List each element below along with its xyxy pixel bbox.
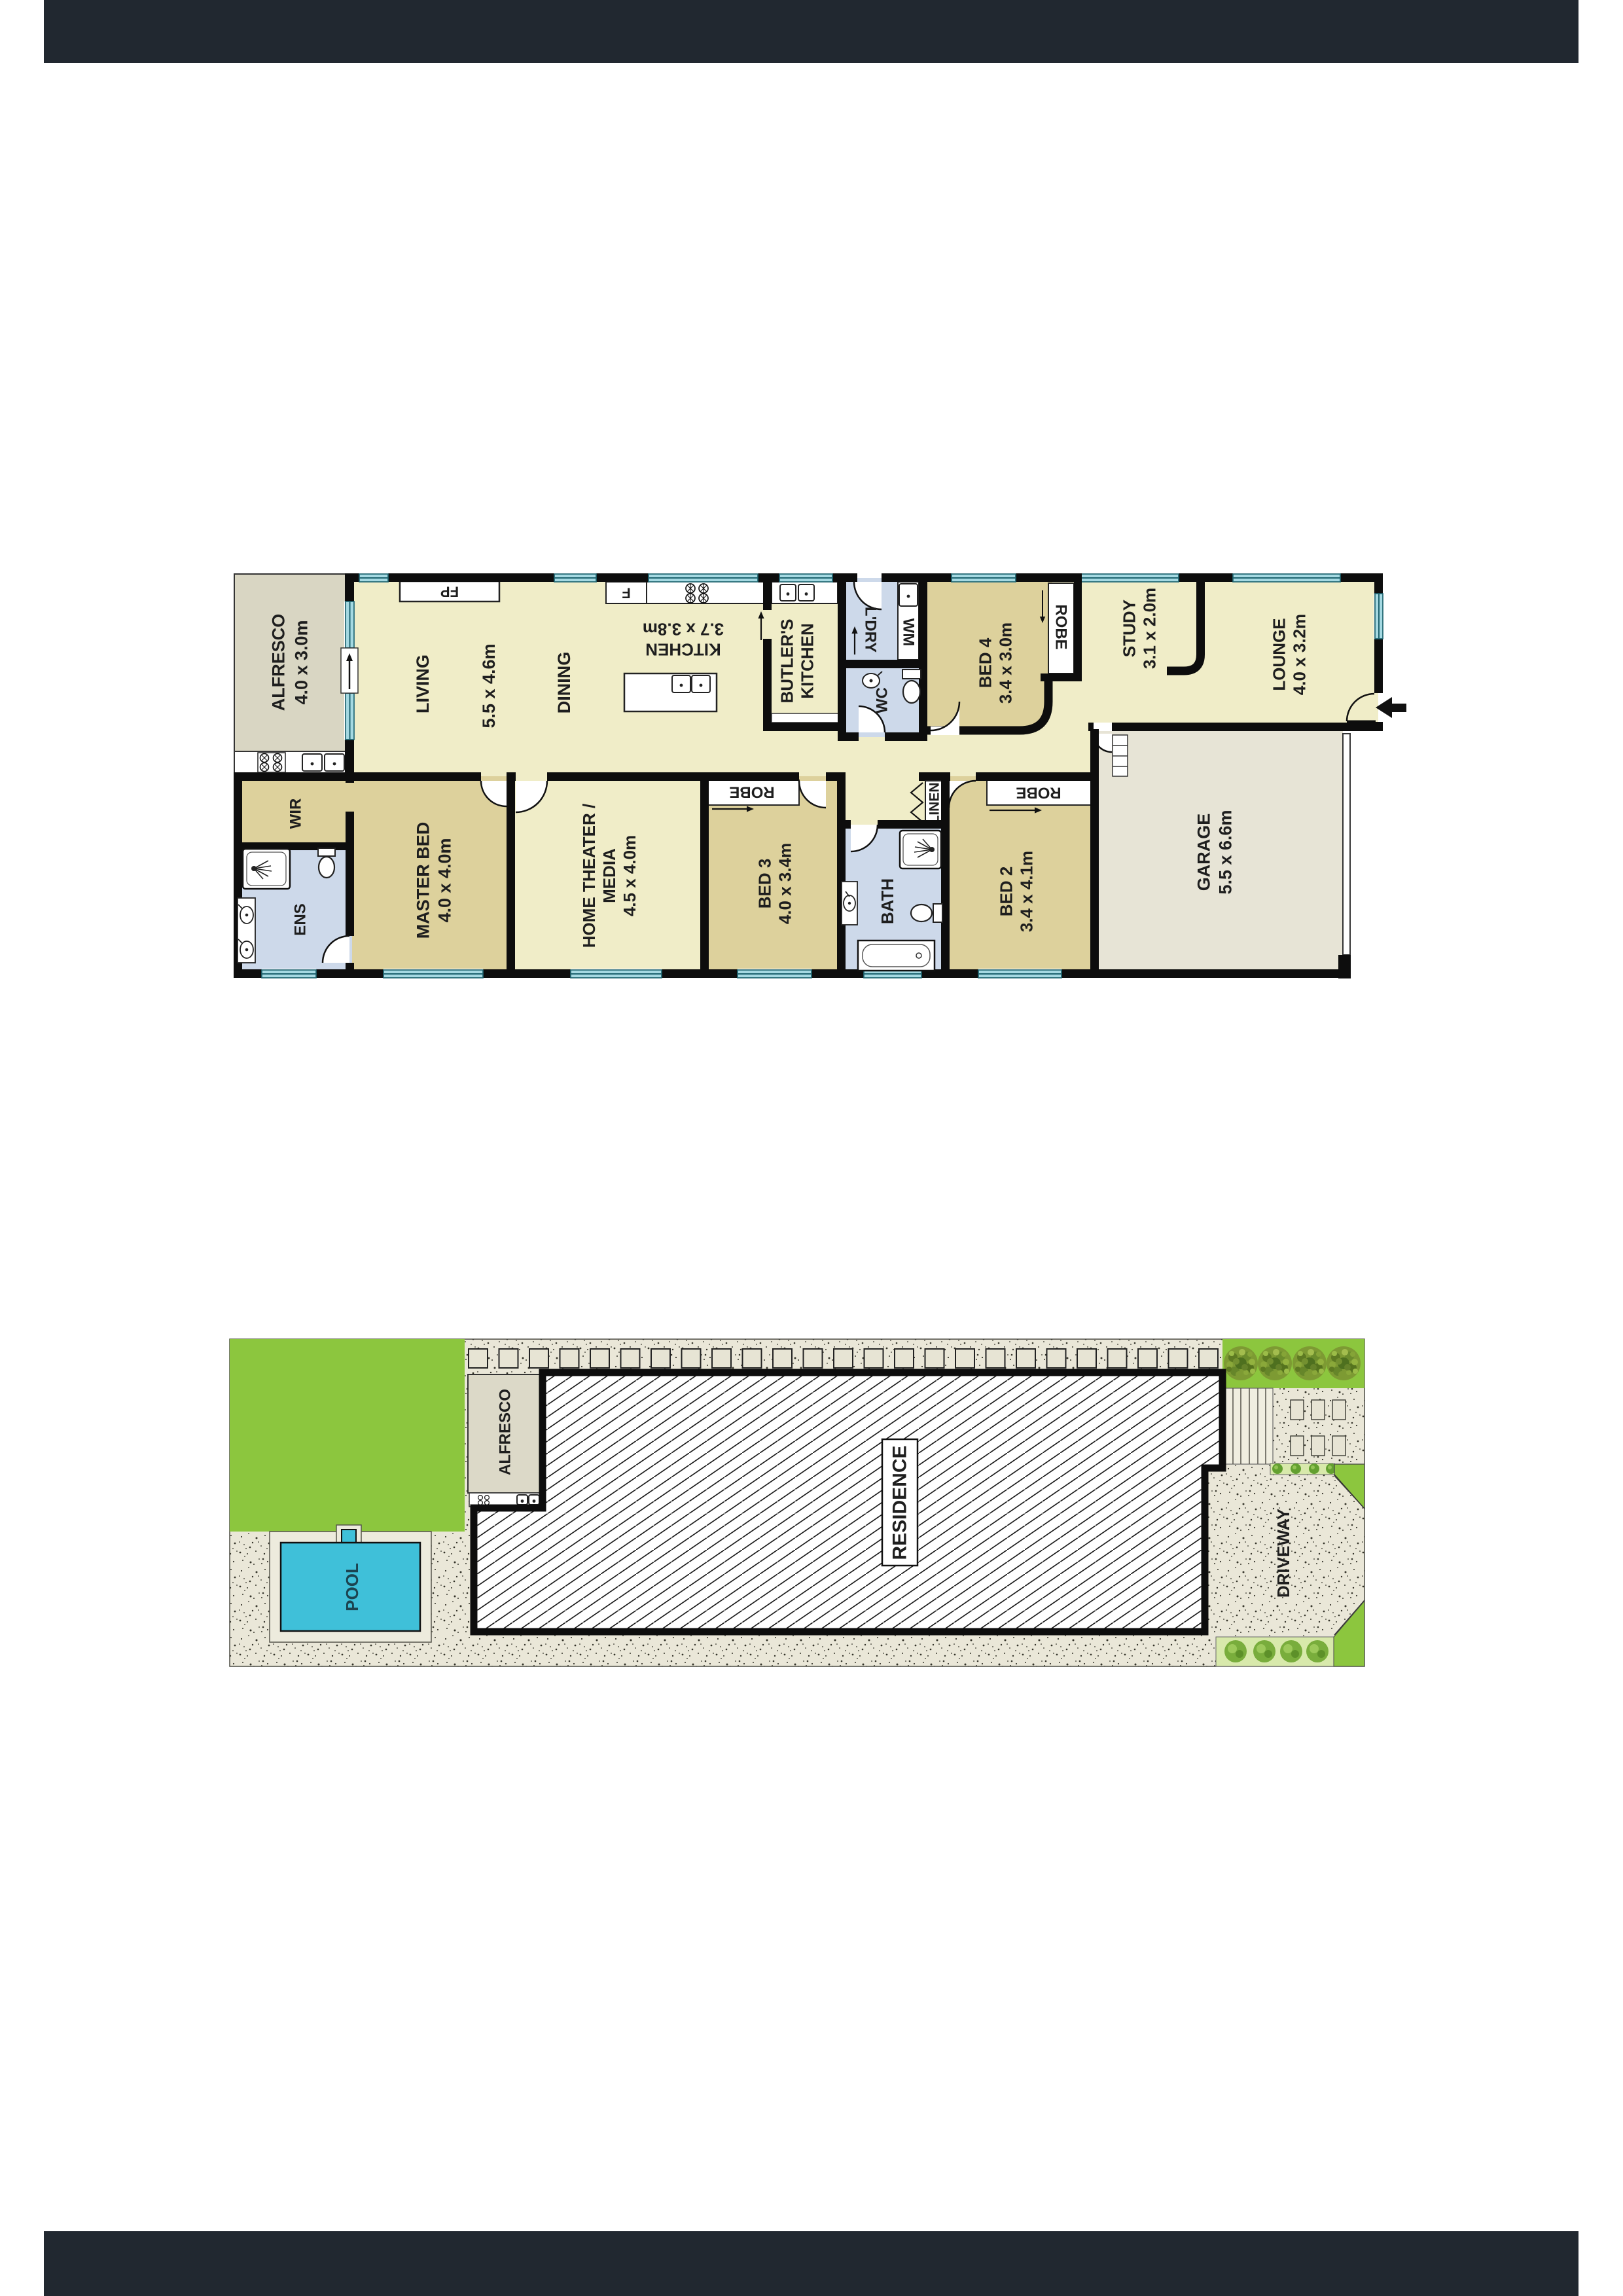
svg-text:4.5 x 4.0m: 4.5 x 4.0m (620, 835, 639, 916)
svg-text:BED 2: BED 2 (997, 867, 1016, 917)
svg-text:LINEN: LINEN (927, 783, 942, 824)
svg-text:4.0 x 3.4m: 4.0 x 3.4m (776, 843, 795, 924)
svg-text:POOL: POOL (342, 1563, 362, 1611)
svg-text:HOME THEATER /: HOME THEATER / (579, 804, 599, 948)
svg-text:BATH: BATH (878, 878, 897, 924)
svg-text:3.7 x 3.8m: 3.7 x 3.8m (643, 620, 724, 639)
svg-text:KITCHEN: KITCHEN (798, 623, 817, 699)
svg-text:LOUNGE: LOUNGE (1270, 618, 1289, 691)
svg-text:FP: FP (440, 584, 459, 600)
svg-text:KITCHEN: KITCHEN (645, 640, 721, 660)
svg-text:ROBE: ROBE (1016, 784, 1061, 802)
svg-text:BED 3: BED 3 (755, 859, 775, 909)
svg-text:ROBE: ROBE (729, 783, 774, 801)
svg-text:ROBE: ROBE (1052, 604, 1070, 649)
svg-text:GARAGE: GARAGE (1194, 814, 1214, 891)
svg-text:WM: WM (900, 619, 918, 647)
svg-text:4.0 x 3.0m: 4.0 x 3.0m (292, 620, 312, 704)
svg-text:3.4 x 3.0m: 3.4 x 3.0m (996, 622, 1016, 704)
svg-text:RESIDENCE: RESIDENCE (889, 1445, 911, 1560)
svg-text:WC: WC (874, 687, 891, 713)
svg-text:3.1 x 2.0m: 3.1 x 2.0m (1140, 588, 1160, 669)
svg-text:DINING: DINING (554, 652, 574, 714)
svg-text:ENS: ENS (292, 903, 310, 935)
svg-text:LIVING: LIVING (413, 655, 433, 713)
svg-text:3.4 x 4.1m: 3.4 x 4.1m (1017, 851, 1037, 932)
svg-text:MEDIA: MEDIA (599, 848, 619, 903)
svg-text:STUDY: STUDY (1120, 600, 1139, 657)
svg-text:4.0 x 4.0m: 4.0 x 4.0m (435, 838, 455, 922)
svg-text:ALFRESCO: ALFRESCO (497, 1389, 514, 1475)
svg-text:5.5 x 6.6m: 5.5 x 6.6m (1216, 810, 1236, 894)
svg-text:DRIVEWAY: DRIVEWAY (1274, 1509, 1293, 1598)
svg-text:BUTLER'S: BUTLER'S (777, 619, 797, 704)
svg-text:5.5 x 4.6m: 5.5 x 4.6m (479, 643, 499, 728)
svg-text:WIR: WIR (287, 798, 305, 829)
svg-text:MASTER BED: MASTER BED (414, 822, 433, 939)
svg-text:4.0 x 3.2m: 4.0 x 3.2m (1290, 614, 1310, 695)
svg-text:L'DRY: L'DRY (862, 607, 880, 653)
svg-text:ALFRESCO: ALFRESCO (269, 614, 289, 711)
svg-text:BED 4: BED 4 (976, 637, 995, 688)
svg-text:F: F (622, 585, 630, 601)
